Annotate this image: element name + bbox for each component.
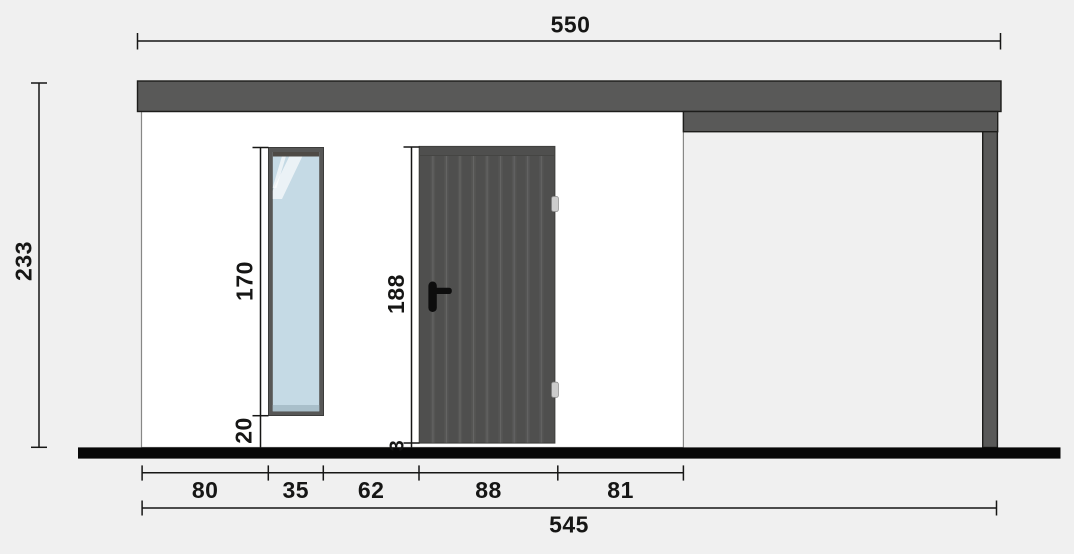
svg-text:81: 81 <box>607 477 634 503</box>
svg-text:170: 170 <box>232 261 258 301</box>
svg-text:20: 20 <box>231 417 257 444</box>
svg-text:88: 88 <box>475 477 502 503</box>
svg-text:3: 3 <box>387 440 409 452</box>
svg-text:80: 80 <box>192 477 219 503</box>
svg-text:550: 550 <box>551 12 591 38</box>
svg-text:233: 233 <box>11 241 37 281</box>
svg-text:545: 545 <box>549 511 589 537</box>
svg-text:62: 62 <box>358 477 385 503</box>
svg-text:188: 188 <box>383 274 409 314</box>
svg-text:35: 35 <box>283 477 310 503</box>
